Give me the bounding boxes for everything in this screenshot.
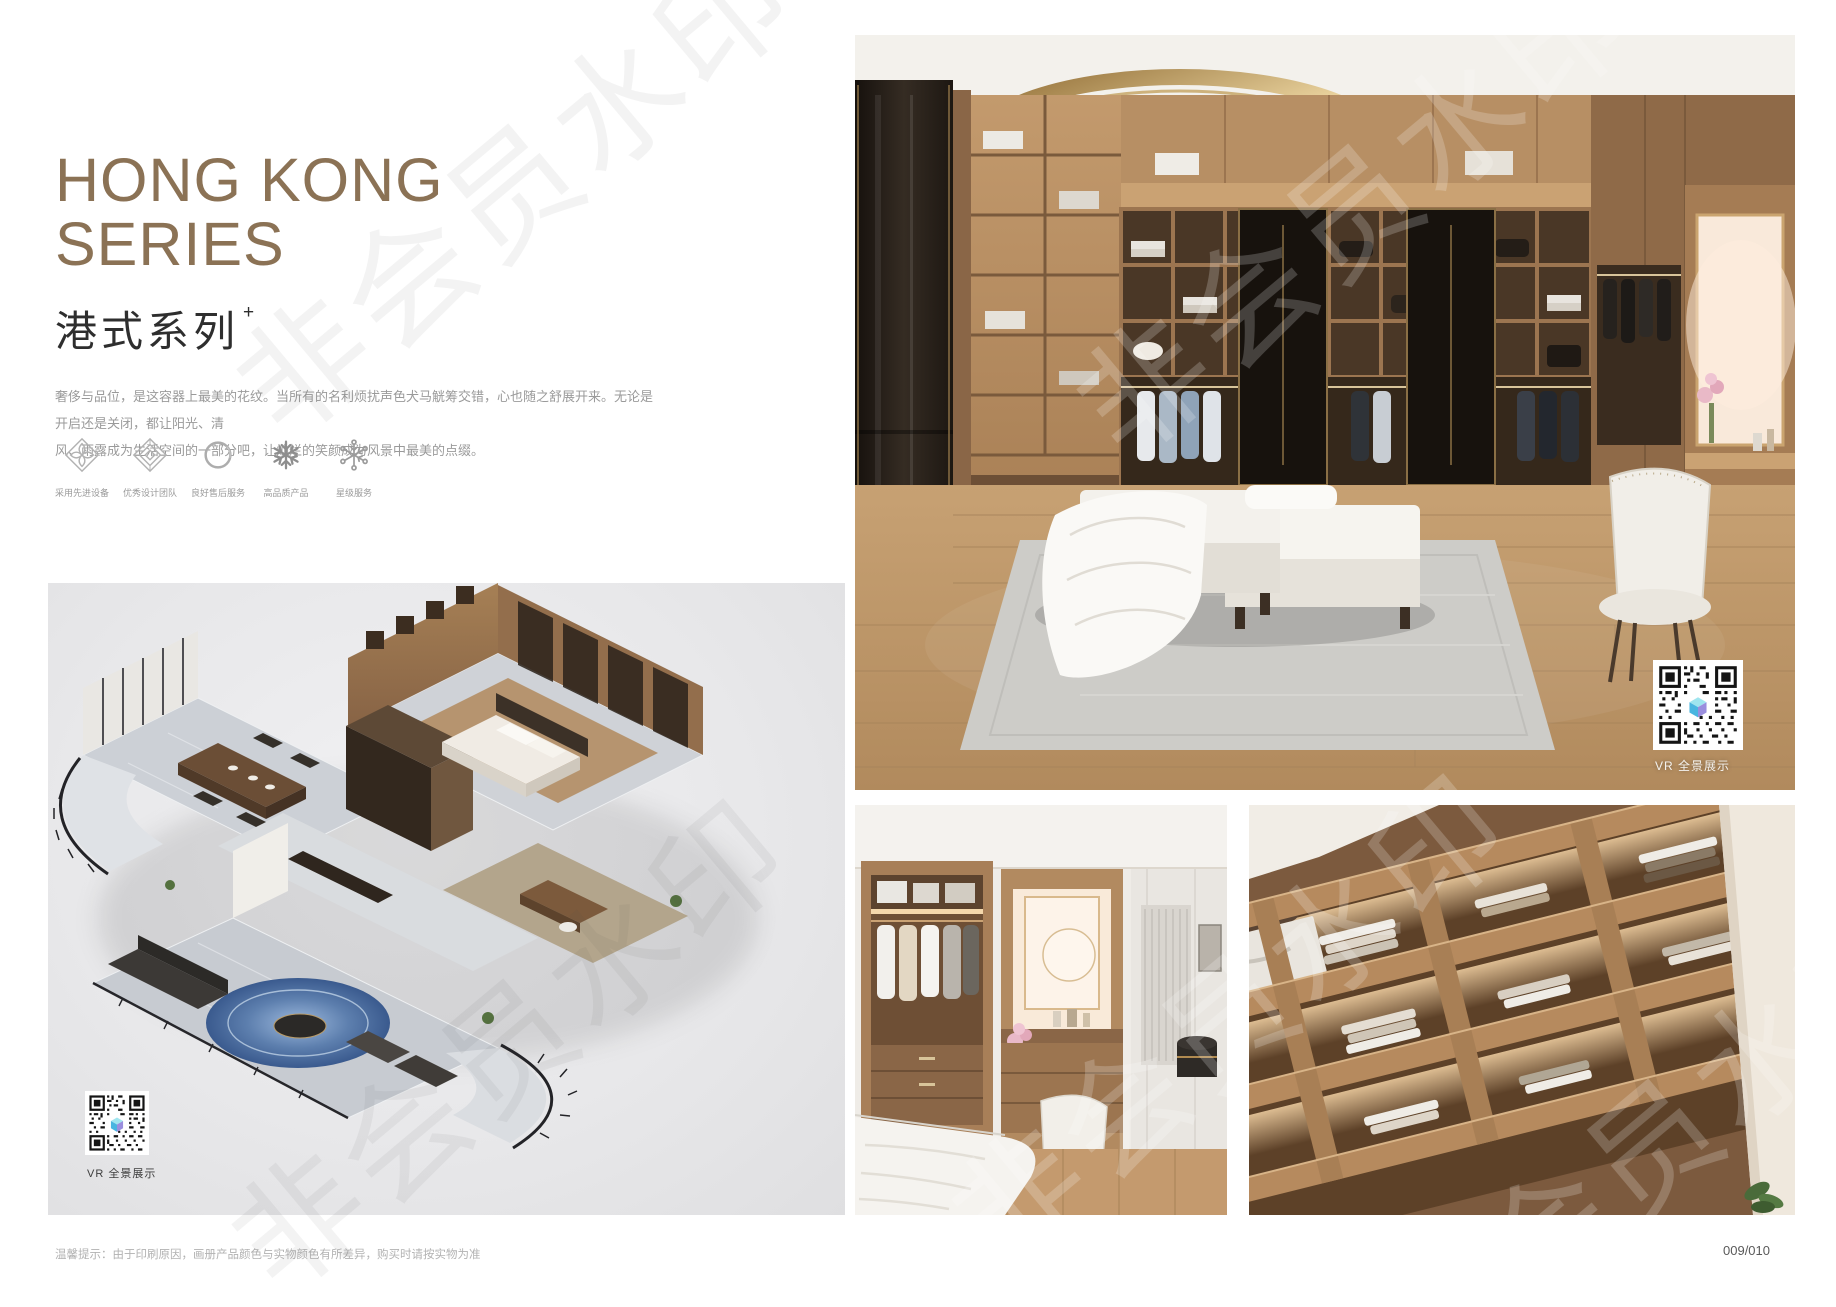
subtitle-plus-mark: + [243,302,258,323]
feature-item-design-team: 优秀设计团队 [120,436,180,499]
feature-list: 采用先进设备 优秀设计团队 良好售后服务 [52,436,384,499]
feature-label: 采用先进设备 [55,486,109,499]
photo-shelf-closeup [1249,805,1795,1215]
title-block: HONG KONG SERIES 港式系列+ [55,148,444,359]
feature-item-quality: 高品质产品 [256,436,316,499]
series-subtitle-text: 港式系列 [55,308,239,355]
series-subtitle: 港式系列+ [55,298,444,359]
vr-label: VR 全景展示 [1655,757,1730,774]
diamond-pattern-icon [131,436,169,479]
footnote: 温馨提示：由于印刷原因，画册产品颜色与实物颜色有所差异，购买时请按实物为准 [55,1246,481,1262]
photo-dressing-area [855,805,1227,1215]
ring-icon [199,436,237,479]
qr-code [1653,660,1743,750]
flower-diamond-icon [63,436,101,479]
catalog-page: HONG KONG SERIES 港式系列+ 奢侈与品位，是这容器上最美的花纹。… [0,0,1836,1307]
qr-code [85,1091,149,1155]
feature-item-star-service: 星级服务 [324,436,384,499]
feature-label: 优秀设计团队 [123,486,177,499]
feature-item-service: 良好售后服务 [188,436,248,499]
vr-label: VR 全景展示 [87,1165,156,1181]
dressing-area-illustration [855,805,1227,1215]
feature-label: 高品质产品 [263,486,308,499]
snowflake-icon [267,436,305,479]
page-number: 009/010 [1723,1243,1770,1258]
feature-label: 良好售后服务 [191,486,245,499]
description-line1: 奢侈与品位，是这容器上最美的花纹。当所有的名利烦扰声色犬马觥筹交错，心也随之舒展… [55,383,655,437]
shelf-closeup-illustration [1249,805,1795,1215]
series-title-line1: HONG KONG [55,148,444,212]
star-flake-icon [335,436,373,479]
floorplan-panel: VR 全景展示 [48,583,845,1215]
feature-label: 星级服务 [336,486,372,499]
floorplan-render [48,583,845,1215]
series-title-line2: SERIES [55,212,444,276]
main-photo: VR 全景展示 [855,35,1795,790]
feature-item-equipment: 采用先进设备 [52,436,112,499]
